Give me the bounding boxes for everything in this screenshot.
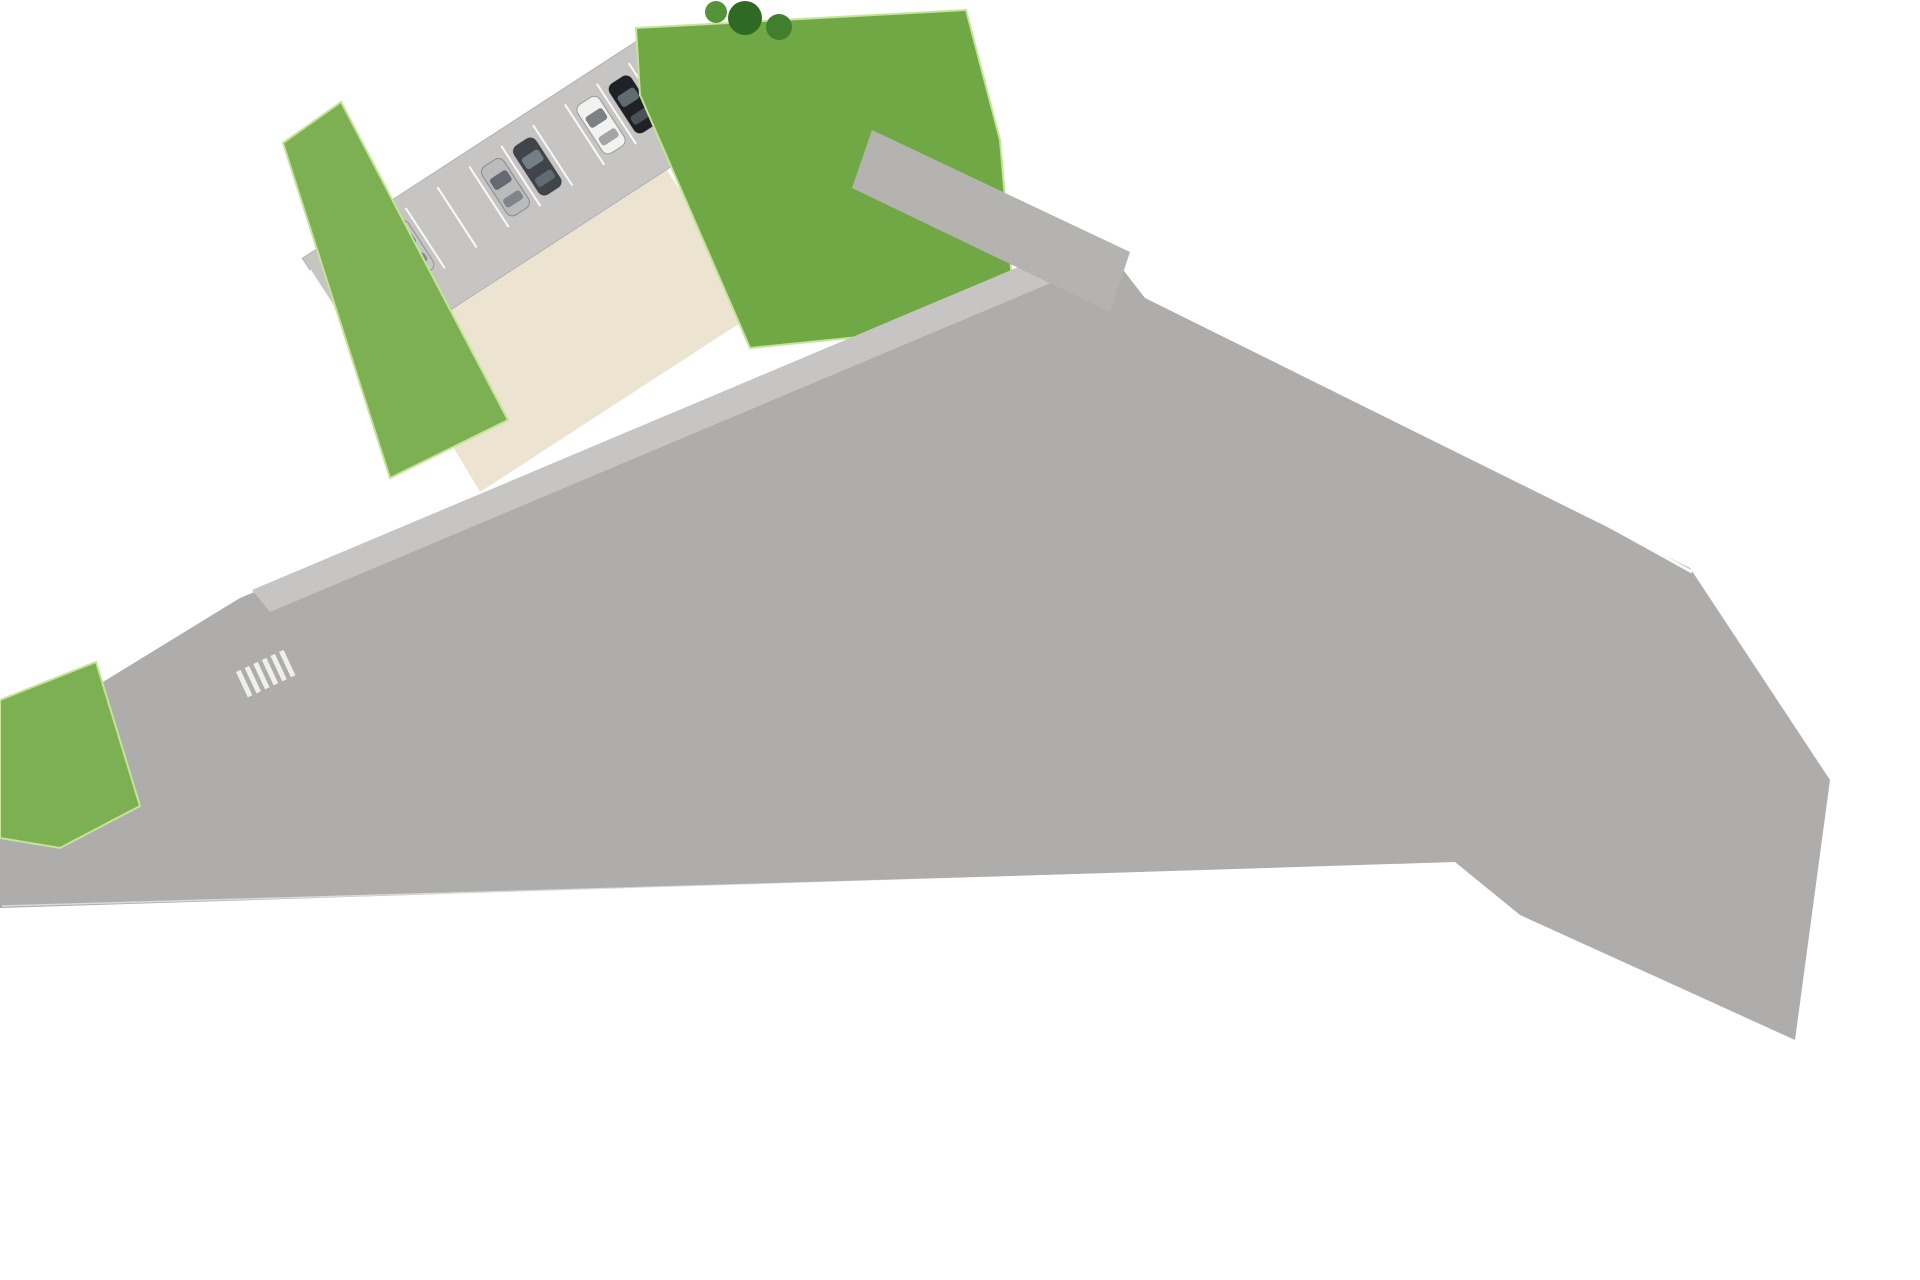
bush-icon [705,1,727,23]
site-plan [0,0,1920,1280]
bush-icon [728,1,762,35]
site-plan-svg [0,0,1920,1280]
bush-icon [766,14,792,40]
